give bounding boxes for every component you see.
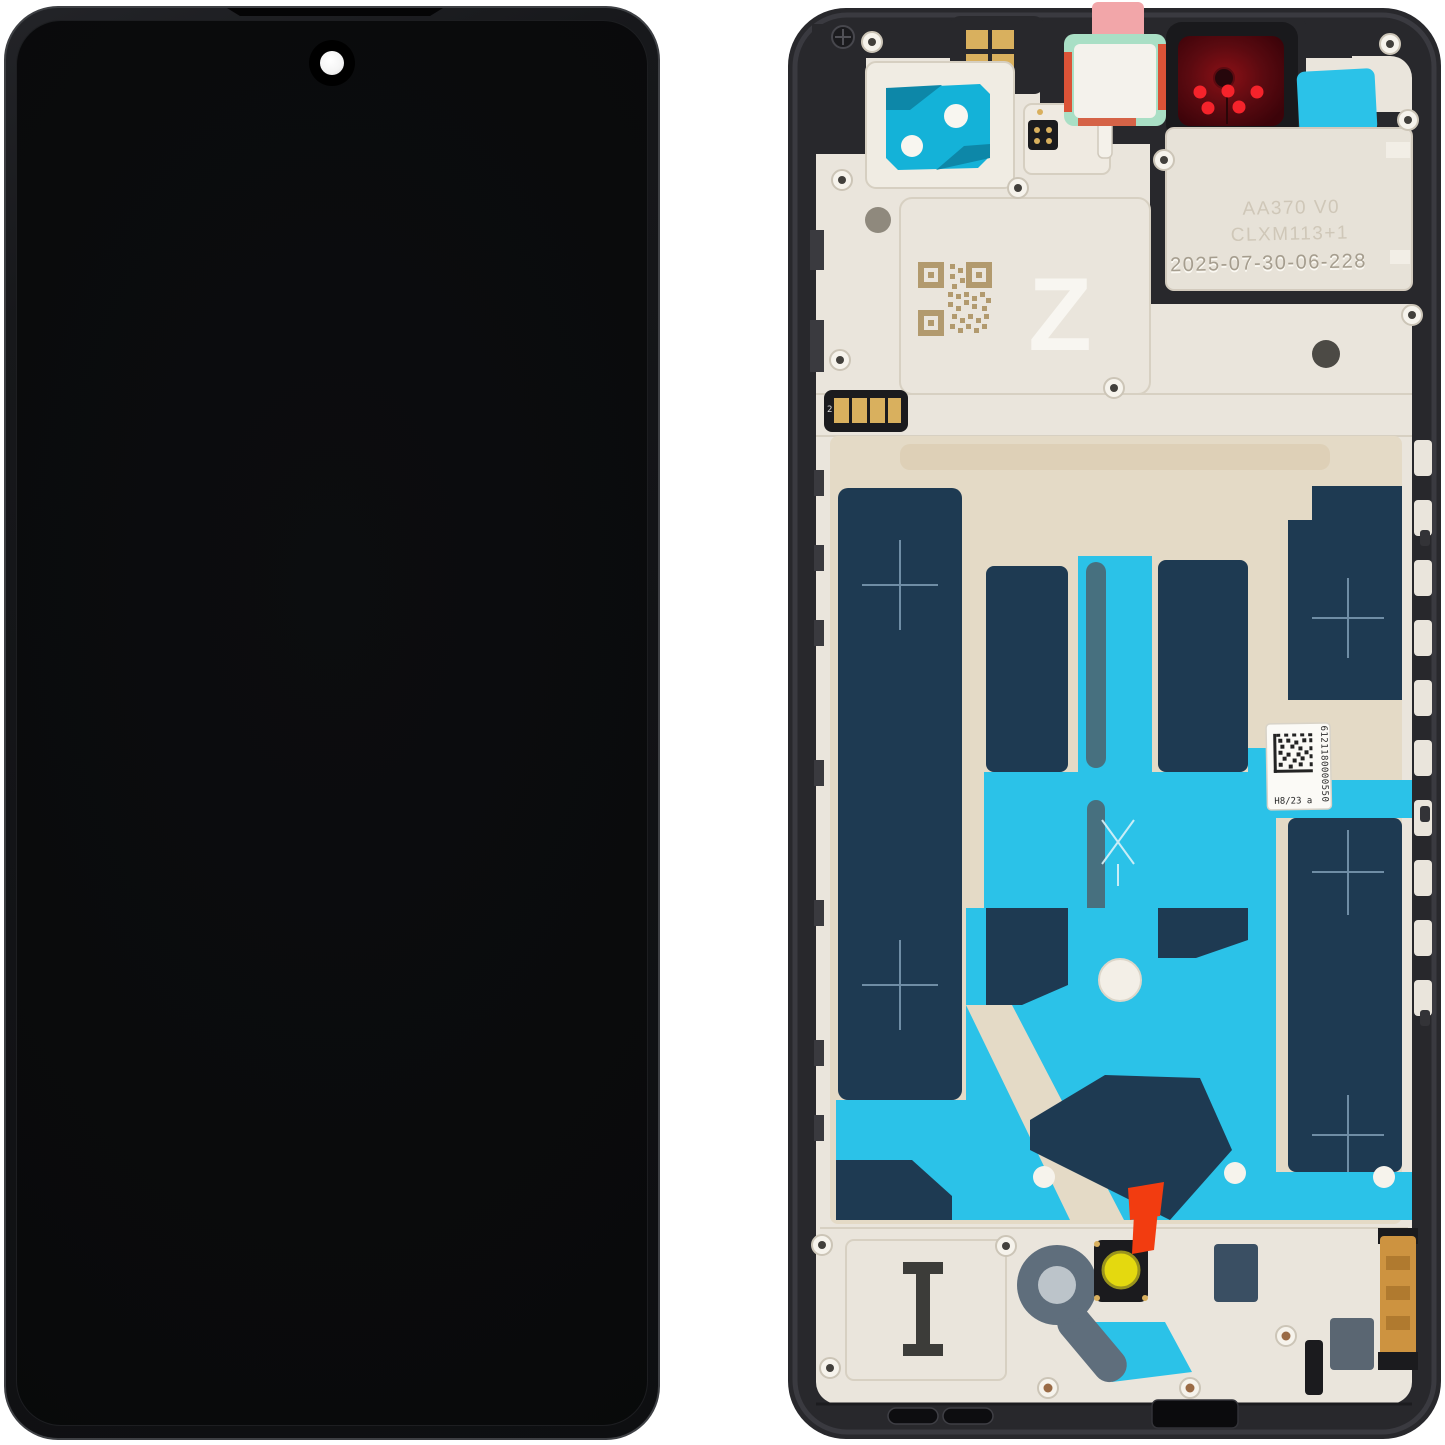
tan-residue	[900, 444, 1330, 470]
strip-mark: 2	[827, 405, 832, 415]
plate-hole-large	[1099, 959, 1141, 1001]
cyan-sticker-top-right	[1296, 68, 1377, 136]
speaker-slot	[943, 1408, 993, 1424]
label-barcode-number: 6121180000550	[1318, 725, 1329, 802]
mint-adhesive-sticker	[1064, 34, 1166, 126]
plate-hole	[1224, 1162, 1246, 1184]
rear-display-module: AA370 V0 CLXM113+1 2025-07-30-06-228 202…	[778, 0, 1445, 1445]
serial-label: 6121180000550 H8/23 a	[1266, 723, 1331, 810]
punch-hole-camera	[309, 40, 355, 86]
adhesive-pad-ur	[1158, 560, 1248, 772]
teal-camera-sticker	[886, 84, 990, 170]
earpiece-slot	[227, 8, 443, 16]
speaker-slot	[888, 1408, 938, 1424]
camera-lens-window	[1166, 22, 1298, 140]
pad-slate-square	[1214, 1244, 1258, 1302]
plate-hole	[1373, 1166, 1395, 1188]
etched-letter-mark: Z	[1028, 257, 1092, 373]
embossed-code-line1: AA370 V0	[1242, 197, 1340, 220]
product-photo: AA370 V0 CLXM113+1 2025-07-30-06-228 202…	[0, 0, 1445, 1445]
embossed-code-line2: CLXM113+1	[1231, 223, 1350, 246]
cyan-channel-right	[1248, 748, 1276, 1220]
adhesive-pad-left-column	[838, 488, 962, 1100]
cable-channel	[1086, 562, 1106, 768]
speaker-plate: AA370 V0 CLXM113+1 2025-07-30-06-228 202…	[1166, 128, 1412, 290]
sticker-hole	[901, 135, 923, 157]
adhesive-pad-right-lower	[1288, 818, 1402, 1175]
label-batch-code: H8/23 a	[1274, 796, 1312, 807]
front-screen	[16, 20, 648, 1426]
charging-port-cutout	[1152, 1400, 1238, 1428]
front-display-module	[4, 6, 660, 1440]
camera-lens	[320, 51, 344, 75]
plate-hole	[1033, 1166, 1055, 1188]
gold-contact-strip: 2	[824, 390, 908, 432]
frame-screw	[832, 26, 854, 48]
adhesive-pad-ul	[986, 566, 1068, 772]
embossed-date: 2025-07-30-06-228	[1170, 250, 1367, 276]
gold-flex-cable	[1378, 1228, 1418, 1370]
frame-post	[1305, 1340, 1323, 1395]
sticker-hole	[944, 104, 968, 128]
plate-dark-dot	[1312, 340, 1340, 368]
pad-gray-square	[1330, 1318, 1374, 1370]
plate-dot	[865, 207, 891, 233]
